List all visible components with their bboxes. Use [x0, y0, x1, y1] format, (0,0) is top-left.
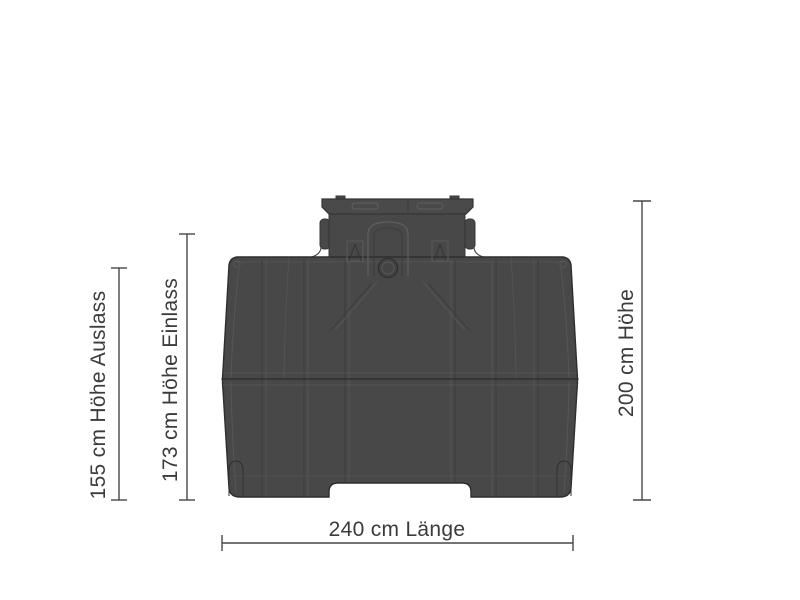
dim-label-inlet-height: 173 cm Höhe Einlass — [158, 230, 184, 530]
dim-label-length: 240 cm Länge — [247, 517, 547, 543]
tank-body — [223, 257, 578, 497]
tank-technical-drawing — [0, 0, 800, 600]
dim-line-outlet-height — [111, 268, 127, 500]
tank-silhouette — [222, 196, 578, 497]
dimension-diagram: 155 cm Höhe Auslass 173 cm Höhe Einlass … — [0, 0, 800, 600]
tank-manhole-neck — [320, 196, 475, 260]
dim-label-outlet-height: 155 cm Höhe Auslass — [86, 245, 112, 545]
outlet-port-circle — [379, 259, 398, 278]
dim-label-total-height: 200 cm Höhe — [614, 203, 640, 503]
